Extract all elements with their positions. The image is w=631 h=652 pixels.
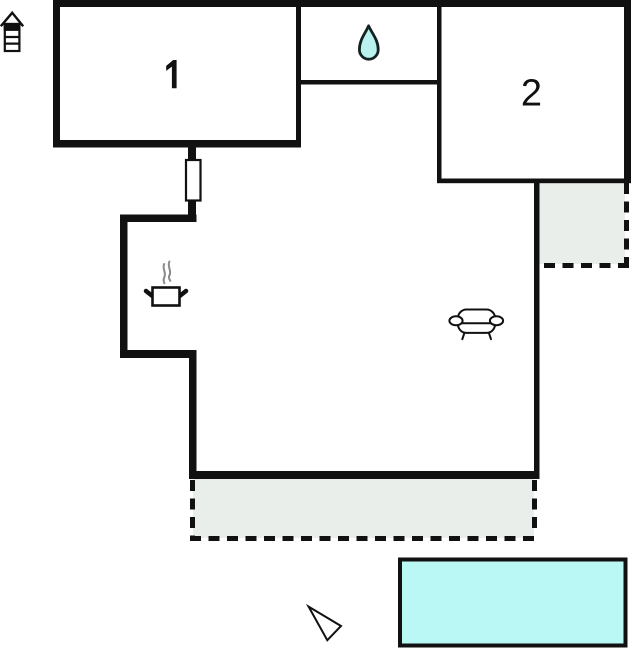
svg-text:2: 2 xyxy=(521,73,542,115)
